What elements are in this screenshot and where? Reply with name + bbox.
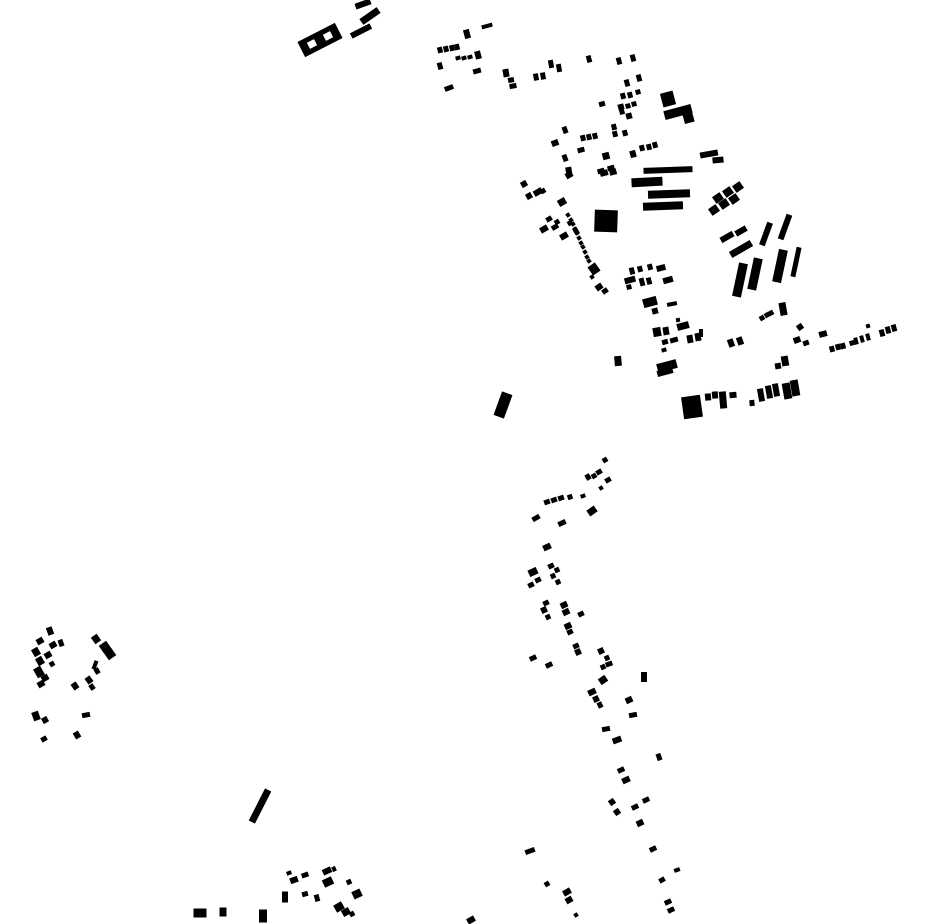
building-footprint [664, 898, 672, 905]
building-footprint [548, 60, 554, 69]
building-footprint [757, 388, 765, 402]
building-footprint [649, 845, 657, 852]
building-footprint [859, 335, 865, 343]
building-footprint [560, 601, 569, 609]
building-footprint [765, 385, 773, 399]
building-footprint [614, 356, 622, 367]
building-footprint [586, 133, 592, 140]
building-footprint [559, 231, 569, 240]
building-footprint [31, 647, 41, 657]
cluster-southeast-block [656, 367, 800, 419]
building-footprint [613, 808, 621, 816]
building-footprint [829, 345, 835, 352]
building-footprint [648, 189, 690, 198]
building-footprint [539, 224, 549, 233]
building-footprint [259, 910, 267, 923]
building-footprint [700, 149, 719, 158]
building-footprint [596, 701, 603, 709]
building-footprint [437, 46, 443, 53]
building-footprint [651, 307, 658, 314]
building-footprint [533, 73, 539, 81]
building-footprint [41, 716, 49, 724]
building-footprint [676, 321, 689, 331]
building-footprint [736, 336, 744, 346]
building-footprint [646, 143, 652, 150]
building-footprint [540, 606, 548, 614]
building-footprint [747, 257, 762, 290]
building-footprint [631, 177, 662, 188]
building-footprint [592, 695, 600, 703]
building-footprint [655, 753, 662, 761]
building-footprint [686, 335, 693, 344]
building-footprint [617, 766, 625, 773]
building-footprint [587, 688, 597, 697]
building-footprint [639, 144, 645, 151]
building-footprint [641, 672, 647, 682]
building-footprint [314, 894, 321, 902]
building-footprint [642, 796, 650, 803]
building-footprint [602, 457, 609, 464]
building-footprint [322, 866, 333, 875]
building-footprint [350, 23, 372, 38]
building-footprint [282, 892, 288, 903]
building-footprint [565, 212, 571, 218]
building-footprint [562, 608, 571, 616]
building-footprint [542, 599, 550, 606]
building-footprint [661, 339, 668, 345]
cluster-lone-bar [494, 391, 513, 418]
building-footprint [586, 506, 597, 517]
cluster-far-east-scatter [699, 302, 897, 369]
building-footprint [749, 400, 755, 406]
building-footprint [551, 139, 560, 147]
building-footprint [637, 265, 643, 272]
building-footprint [82, 712, 91, 718]
building-footprint [580, 493, 586, 498]
building-footprint [545, 215, 553, 222]
building-footprint [734, 225, 747, 236]
building-footprint [624, 276, 636, 285]
building-footprint [597, 647, 605, 655]
building-footprint [781, 355, 790, 366]
building-footprint [289, 876, 299, 884]
building-footprint [595, 468, 603, 475]
building-footprint [643, 201, 683, 210]
cluster-plus-building [660, 91, 695, 124]
building-footprint [437, 62, 444, 70]
building-footprint [88, 683, 96, 691]
building-footprint [594, 210, 618, 233]
building-footprint [669, 337, 678, 344]
building-footprint [732, 262, 748, 297]
building-footprint [561, 154, 568, 162]
building-footprint [778, 302, 787, 316]
building-footprint [547, 562, 555, 569]
building-footprint [301, 891, 308, 897]
building-footprint [625, 112, 632, 119]
building-footprint [598, 675, 609, 685]
building-footprint [604, 655, 611, 662]
building-footprint [463, 29, 471, 39]
building-footprint [699, 329, 703, 337]
cluster-south-tail [649, 845, 681, 913]
cluster-west-village [31, 626, 116, 742]
building-footprint [620, 92, 626, 99]
cluster-big-square [594, 210, 618, 233]
building-footprint [35, 656, 45, 666]
building-footprint [40, 735, 48, 742]
building-footprint [71, 681, 80, 690]
building-footprint [576, 235, 582, 241]
building-footprint [586, 55, 593, 63]
cluster-mid-chain [527, 457, 647, 686]
building-footprint [592, 132, 598, 139]
building-footprint [600, 664, 607, 671]
building-footprint [564, 896, 573, 905]
building-footprint [587, 262, 600, 275]
building-footprint [630, 54, 637, 62]
building-footprint [772, 383, 780, 397]
building-footprint [629, 712, 638, 718]
cluster-northwest-blocks [297, 0, 380, 57]
building-footprint [639, 277, 646, 286]
building-footprint [631, 803, 639, 810]
building-footprint [802, 340, 809, 347]
building-footprint [631, 101, 637, 107]
building-footprint [73, 730, 82, 739]
building-footprint [540, 72, 546, 80]
building-footprint [555, 579, 562, 586]
building-footprint [43, 651, 52, 660]
building-footprint [667, 301, 678, 307]
building-footprint [444, 84, 454, 92]
building-footprint [729, 240, 753, 258]
building-footprint [524, 847, 535, 855]
building-footprint [676, 318, 681, 323]
building-footprint [249, 788, 272, 823]
building-footprint [564, 171, 573, 180]
building-footprint [646, 277, 653, 285]
building-footprint [529, 654, 537, 661]
building-footprint [635, 89, 641, 95]
building-footprint [474, 50, 482, 59]
building-footprint [759, 222, 773, 247]
building-footprint [574, 648, 582, 656]
building-footprint [624, 79, 631, 87]
building-footprint [643, 166, 692, 174]
building-footprint [494, 391, 513, 418]
building-footprint [85, 675, 94, 684]
building-footprint [622, 129, 628, 136]
building-footprint [661, 347, 667, 352]
building-footprint [652, 141, 658, 148]
building-footprint [467, 54, 473, 59]
building-footprint [297, 23, 342, 57]
building-footprint [681, 395, 703, 419]
building-footprint [557, 519, 566, 527]
building-footprint [91, 634, 101, 645]
cluster-diagonal-bar [249, 788, 272, 823]
building-footprint [502, 69, 509, 78]
building-footprint [727, 338, 735, 348]
building-footprint [531, 514, 540, 522]
cluster-north-hamlet-east [586, 54, 643, 111]
building-footprint [719, 391, 727, 409]
building-footprint [626, 284, 632, 290]
building-footprint [647, 263, 653, 270]
building-footprint [577, 610, 585, 617]
building-footprint [602, 152, 611, 161]
building-footprint [544, 881, 551, 888]
building-footprint [612, 130, 618, 137]
building-footprint [582, 249, 588, 255]
building-footprint [584, 473, 591, 481]
building-footprint [642, 296, 658, 308]
cluster-east-rows [614, 263, 702, 372]
building-footprint [662, 276, 673, 284]
building-footprint [759, 315, 766, 322]
building-footprint [673, 867, 680, 873]
building-footprint [602, 726, 611, 732]
building-footprint [719, 231, 734, 243]
building-footprint [443, 45, 449, 52]
building-footprint [656, 264, 666, 272]
building-footprint [351, 888, 363, 899]
building-footprint [712, 391, 719, 398]
building-footprint [49, 661, 56, 668]
building-footprint [580, 134, 586, 141]
building-footprint [359, 7, 380, 25]
building-footprint [591, 473, 598, 480]
building-footprint [625, 103, 631, 109]
building-footprint [627, 91, 633, 98]
building-footprint [534, 576, 542, 583]
building-footprint [681, 108, 694, 124]
building-footprint [658, 876, 666, 883]
building-footprint [885, 326, 892, 334]
building-footprint [598, 101, 605, 107]
building-footprint [35, 637, 44, 646]
building-footprint [46, 626, 54, 636]
building-footprint [48, 641, 57, 650]
building-footprint [461, 55, 467, 60]
building-footprint [793, 336, 802, 344]
building-footprint [561, 126, 568, 134]
building-footprint [455, 55, 461, 60]
building-footprint [554, 567, 561, 574]
cluster-north-village [437, 23, 562, 92]
building-footprint [891, 324, 898, 332]
building-footprint [712, 157, 723, 164]
building-footprint [605, 660, 613, 667]
building-footprint [550, 497, 557, 504]
building-footprint [865, 333, 871, 341]
building-footprint [729, 392, 736, 399]
building-footprint [573, 912, 578, 917]
building-footprint [705, 393, 712, 400]
building-footprint [562, 887, 572, 896]
building-footprint [818, 330, 827, 338]
building-footprint [557, 495, 564, 502]
building-footprint [545, 614, 552, 621]
building-footprint [790, 247, 801, 277]
building-footprint [481, 23, 493, 30]
building-footprint [557, 197, 567, 207]
cluster-east-estate [708, 181, 802, 297]
building-footprint [527, 567, 538, 577]
building-footprint [772, 249, 788, 283]
building-footprint [612, 736, 623, 745]
building-footprint [556, 64, 562, 73]
building-footprint [509, 83, 517, 89]
building-footprint [31, 711, 41, 722]
building-footprint [629, 150, 637, 158]
building-footprint [652, 327, 661, 337]
building-footprint [346, 879, 353, 886]
building-footprint [608, 798, 616, 806]
building-footprint [472, 68, 481, 75]
cluster-south-chain [587, 688, 662, 828]
building-footprint [667, 906, 675, 913]
building-footprint [550, 573, 557, 580]
building-footprint [57, 639, 64, 647]
building-footprint [625, 696, 634, 704]
building-footprint [542, 543, 552, 552]
building-footprint [660, 91, 676, 108]
building-footprint [611, 123, 617, 130]
building-footprint [545, 661, 553, 668]
building-footprint [662, 327, 669, 336]
cluster-south-village [194, 866, 363, 923]
cluster-stepped-building [700, 149, 724, 163]
building-footprint [567, 494, 573, 500]
building-footprint [866, 324, 871, 329]
building-footprint [621, 776, 631, 785]
building-footprint [525, 192, 533, 200]
building-footprint [775, 363, 782, 370]
building-footprint [796, 323, 804, 331]
building-footprint [636, 819, 645, 827]
building-footprint [616, 57, 623, 65]
building-footprint [708, 204, 720, 216]
building-footprint [778, 214, 793, 240]
cluster-long-bars [631, 166, 692, 211]
map-viewport [0, 0, 930, 924]
building-footprint [194, 909, 207, 918]
building-footprint [879, 329, 886, 337]
building-footprint [220, 908, 227, 917]
cluster-south-scatter [466, 847, 579, 924]
building-footprint [354, 0, 371, 10]
building-footprint [577, 147, 585, 154]
building-footprint [598, 485, 603, 490]
building-footprint [636, 74, 643, 82]
building-footprint [301, 871, 309, 878]
building-footprint [604, 476, 612, 483]
building-footprint [466, 915, 476, 924]
footprint-map [0, 0, 930, 924]
building-footprint [286, 870, 292, 875]
building-footprint [732, 181, 744, 193]
building-footprint [543, 499, 550, 506]
building-footprint [520, 180, 528, 188]
cluster-central-grid [520, 109, 658, 241]
building-footprint [322, 876, 334, 887]
building-footprint [508, 77, 515, 83]
building-footprint [527, 581, 535, 588]
building-footprint [629, 267, 636, 275]
